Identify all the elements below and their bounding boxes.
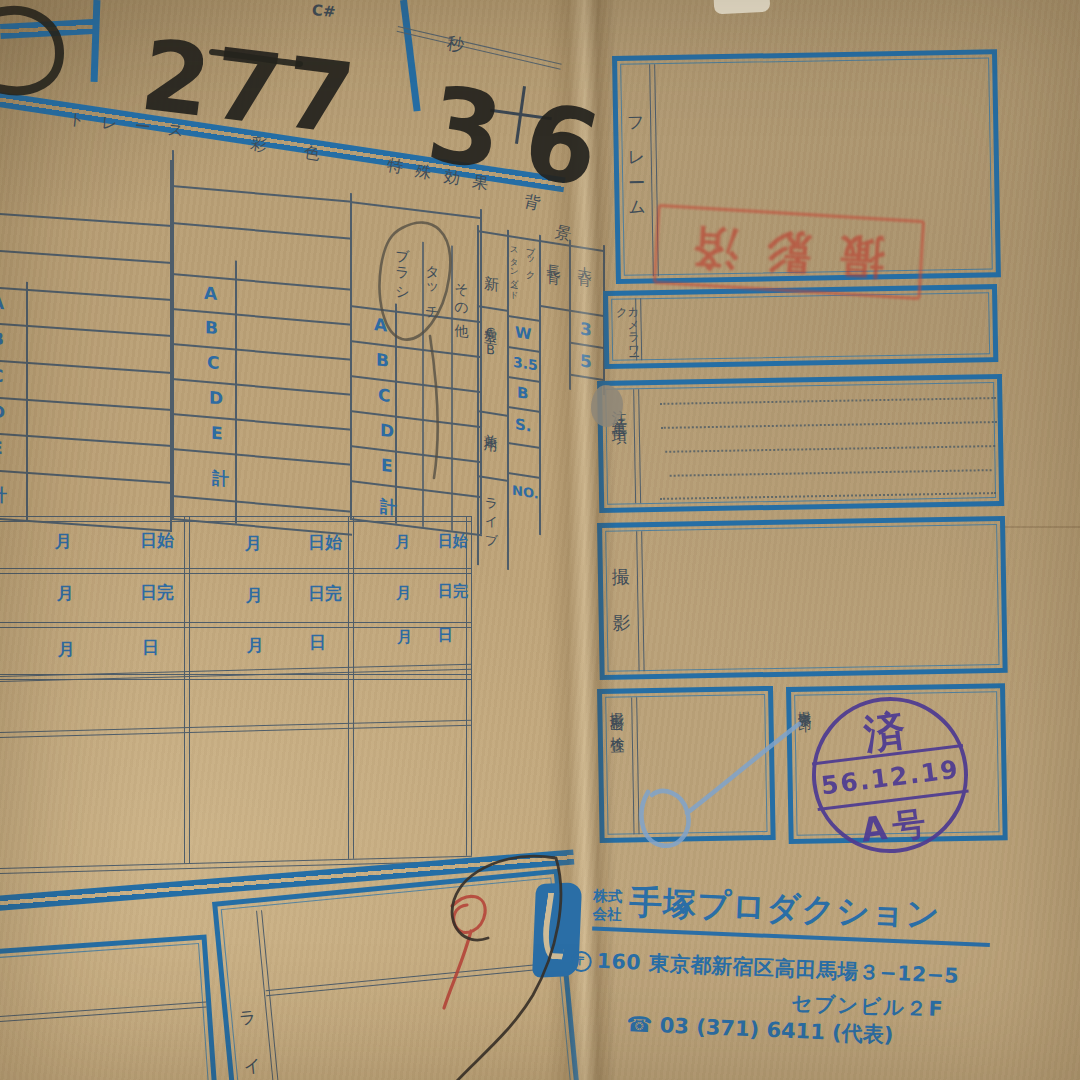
date-day: 日完 (438, 582, 468, 601)
effects-col-brush: ブラシ (396, 237, 410, 298)
phone-icon: ☎ (626, 1012, 653, 1037)
notes-dotted-line (660, 397, 996, 405)
date-month: 月 (395, 533, 410, 552)
row-letter: D (380, 420, 394, 442)
camera-work-box: カメラワーク (603, 284, 998, 369)
seconds-label: 秒 (445, 32, 465, 57)
corp-prefix: 会社 (592, 904, 622, 924)
date-month: 月 (245, 532, 262, 555)
row-letter: C (0, 365, 3, 386)
date-block: 月 日始 月 日完 月 日 月 日始 月 日完 月 日 月 日始 月 日完 月 … (0, 516, 478, 678)
effects-col-touch: タッチ (426, 254, 440, 316)
shooting-box: 撮影 (597, 516, 1008, 680)
postal-mark-icon: 〒 (570, 951, 592, 973)
paper-notch (714, 0, 771, 14)
row-total-label: 計 (0, 483, 7, 507)
bg-large-value: 3 (580, 318, 592, 340)
date-month: 月 (397, 628, 412, 647)
bg-row-live: ライブ (485, 488, 498, 540)
notes-box: 注意事項 (597, 374, 1004, 513)
company-block: 株式 会社 手塚プロダクション 〒160 東京都新宿区高田馬場３−12−5 セブ… (526, 860, 1080, 1080)
date-month: 月 (55, 530, 72, 553)
bg-hdr-book: ブック (526, 239, 536, 276)
effects-col-other: その他 (455, 272, 469, 318)
shooting-label: 撮影 (612, 553, 632, 645)
background-table: 新 雲型・CB 兼用 ライブ スタンダード ブック W 3.5 B S. NO.… (477, 225, 605, 590)
date-day: 日始 (308, 531, 342, 554)
rule-line (397, 26, 562, 70)
row-letter: B (205, 317, 218, 338)
rule-line (0, 19, 99, 39)
bg-value: 3.5 (513, 354, 538, 374)
purple-date-stamp: 済 56.12.19 A号 (803, 688, 977, 862)
bg-value: NO. (512, 483, 539, 502)
coloring-table: A B C D E 計 (172, 150, 352, 541)
envelope-photo: C# 秒 トレース 彩色 特殊効果 背 景 A B C D E 計 (0, 0, 1080, 1080)
row-letter: A (204, 283, 217, 304)
address-text: 160 東京都新宿区高田馬場３−12−5 (596, 949, 959, 988)
bg-value: B (517, 383, 528, 403)
row-letter: E (381, 455, 393, 476)
bg-hdr-long: 長背 (547, 252, 561, 266)
date-day: 日 (309, 631, 326, 654)
section-background-label: 背 (522, 191, 544, 216)
date-month: 月 (246, 584, 263, 607)
date-day: 日完 (140, 581, 174, 604)
notes-dotted-line (665, 445, 995, 453)
bg-row-cloud: 雲型・CB (484, 318, 497, 360)
row-letter: B (0, 328, 4, 349)
empty-grid (0, 663, 478, 872)
date-day: 日始 (438, 532, 468, 551)
notes-dotted-line (661, 421, 997, 429)
trace-table: A B C D E 計 (0, 140, 175, 537)
bg-hdr-standard: スタンダード (510, 240, 519, 296)
bg-value: W (515, 323, 532, 344)
bg-hdr-large: 大背 (578, 254, 592, 268)
handwritten-stroke (212, 52, 300, 64)
date-day: 日始 (140, 529, 174, 552)
date-day: 日 (438, 626, 453, 645)
date-month: 月 (57, 582, 74, 605)
row-letter: C (378, 384, 390, 406)
row-letter: B (376, 349, 389, 371)
finish-stamp-label: 撮影終了印 (797, 700, 811, 710)
rule-line (400, 0, 421, 112)
bg-row-new: 新 (484, 274, 499, 295)
notes-dotted-line (670, 469, 992, 477)
row-letter: A (374, 314, 387, 336)
red-ink-stamp: 撮影済 (653, 204, 925, 300)
bottom-left-box-1 (0, 934, 221, 1080)
bg-large-value: 5 (580, 350, 592, 372)
effects-table: ブラシ タッチ その他 A B C D E 計 (350, 193, 482, 539)
notes-dotted-line (660, 492, 996, 500)
bottom-left-box-2: ライ (212, 869, 581, 1080)
corp-prefix: 株式 (593, 886, 623, 906)
bg-row-combined: 兼用 (484, 422, 498, 434)
fold-crease (1000, 526, 1080, 528)
row-letter: E (0, 437, 3, 458)
frame-label: フレーム (627, 104, 646, 222)
date-day: 日 (142, 636, 159, 659)
logo-mark (539, 892, 572, 959)
row-letter: C (207, 352, 219, 373)
row-letter: D (0, 401, 5, 422)
date-month: 月 (396, 584, 411, 603)
company-address-1: 〒160 東京都新宿区高田馬場３−12−5 (570, 946, 959, 990)
row-letter: D (209, 387, 223, 408)
inspection-label: 撮影出し検査 (609, 701, 624, 730)
date-month: 月 (247, 634, 264, 657)
inspection-box: 撮影出し検査 (597, 686, 776, 843)
rule-line (91, 0, 101, 82)
row-total-label: 計 (212, 466, 229, 490)
date-month: 月 (58, 638, 75, 661)
cut-number-label: C# (311, 1, 336, 21)
row-letter: E (211, 422, 223, 443)
bottom-left-label: ライ (238, 998, 264, 1080)
bg-value: S. (515, 415, 532, 436)
date-day: 日完 (308, 582, 342, 605)
row-letter: A (0, 292, 4, 313)
